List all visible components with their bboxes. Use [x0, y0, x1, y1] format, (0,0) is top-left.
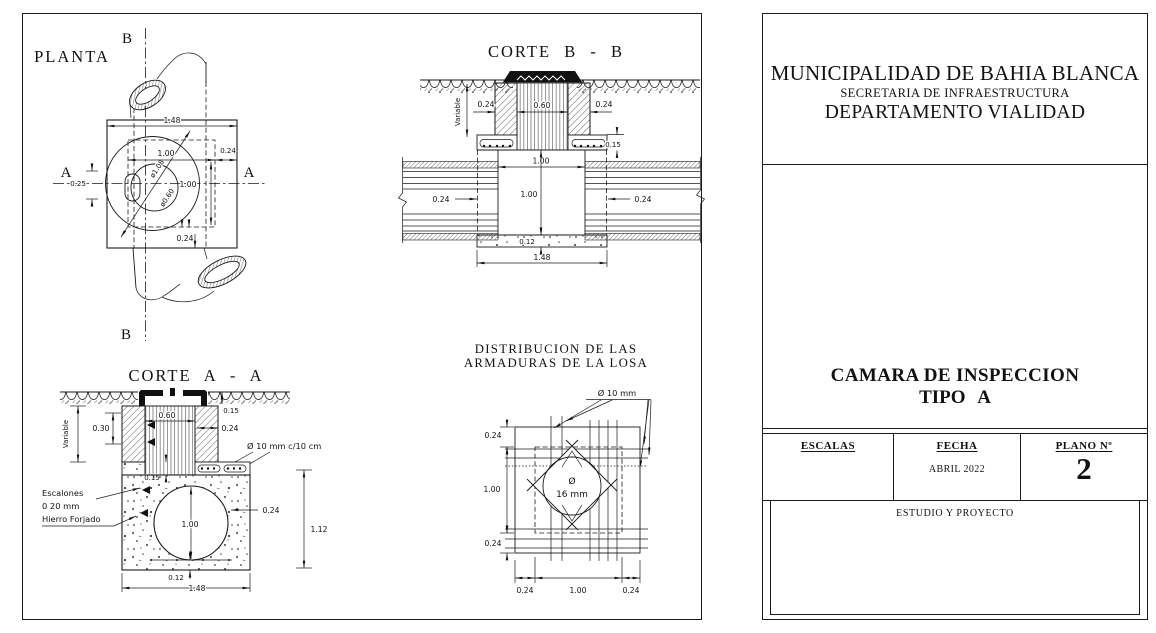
- planta-pipe-bot-bell: [193, 250, 250, 295]
- planta-pipe-top-bell: [124, 74, 171, 116]
- ground-hatch: [577, 80, 700, 93]
- bb-dim-024-pipe-left: 0.24: [433, 195, 450, 204]
- planta-dim-024-bottom: 0.24: [177, 234, 194, 243]
- dist-dim-bottom-mid: 1.00: [570, 586, 587, 595]
- planta-pipe-bot-right-bit: [204, 248, 207, 259]
- cover-flange-left: [503, 71, 515, 82]
- bb-variable-label: Variable: [454, 98, 462, 126]
- bb-slab-left: [477, 135, 517, 150]
- bb-dim-024-right: 0.24: [596, 100, 613, 109]
- title-block-info-row: ESCALAS FECHA ABRIL 2022 PLANO Nº 2: [763, 433, 1147, 501]
- planta-dim-148: 1.48: [164, 116, 181, 125]
- aa-cover-right: [183, 390, 207, 406]
- aa-dim-015-top: 0.15: [223, 407, 239, 415]
- corte-bb-view: CORTE B - B 0.24 0.60 0.24 Variable: [399, 42, 705, 267]
- fecha-value: ABRIL 2022: [894, 464, 1020, 475]
- chimney-shaft: [517, 83, 568, 150]
- aa-chimney-wall-right: [195, 406, 218, 462]
- section-label-a-left: A: [61, 165, 72, 181]
- title-block-header: MUNICIPALIDAD DE BAHIA BLANCA SECRETARIA…: [763, 14, 1147, 165]
- org-secretaria: SECRETARIA DE INFRAESTRUCTURA: [763, 85, 1147, 101]
- distribucion-title-2: ARMADURAS DE LA LOSA: [464, 356, 648, 370]
- dist-dim-left-mid: 1.00: [484, 485, 501, 494]
- rebar-top-label: Ø 10 mm: [598, 388, 637, 398]
- planta-dim-100-right: 1.00: [180, 180, 197, 189]
- planta-dim-100-top: 1.00: [158, 149, 175, 158]
- aa-dim-024-right: 0.24: [263, 506, 280, 515]
- dist-ext: [515, 557, 640, 583]
- aa-cover-center: [170, 388, 175, 396]
- aa-chimney-wall-left: [122, 406, 145, 462]
- dist-dim-left-bottom: 0.24: [485, 539, 502, 548]
- aa-steps-label-2: 0 20 mm: [42, 501, 79, 511]
- plano-number: 2: [1021, 453, 1147, 485]
- aa-dim-024: 0.24: [222, 424, 239, 433]
- drawing-sheet: PLANTA B B A A ø1.08 ø0.60: [0, 0, 1156, 633]
- aa-dim-030: 0.30: [93, 424, 110, 433]
- aa-dim-100: 1.00: [182, 520, 199, 529]
- aa-variable-label: Variable: [62, 420, 70, 448]
- aa-slab-left: [122, 462, 145, 475]
- aa-dim-112: 1.12: [311, 525, 328, 534]
- bb-dim-100-height: 1.00: [521, 190, 538, 199]
- planta-dia-inner: ø0.60: [159, 187, 177, 208]
- dist-dim-left-top: 0.24: [485, 431, 502, 440]
- planta-pipe-top-shoulder: [157, 53, 206, 79]
- bb-dim-024-pipe-right: 0.24: [635, 195, 652, 204]
- aa-dim-012: 0.12: [168, 574, 184, 582]
- aa-steps-label-1: Escalones: [42, 488, 83, 498]
- aa-rebar-label: Ø 10 mm c/10 cm: [247, 441, 321, 451]
- planta-pipe-bot-underside: [162, 291, 214, 302]
- rebar-leader: [554, 400, 601, 428]
- estudio-box: ESTUDIO Y PROYECTO: [770, 501, 1140, 615]
- bb-dim-012: 0.12: [519, 238, 535, 246]
- section-label-b-bottom: B: [121, 327, 131, 343]
- title-block: MUNICIPALIDAD DE BAHIA BLANCA SECRETARIA…: [762, 13, 1148, 620]
- center-dia-value: 16 mm: [556, 490, 588, 500]
- corte-aa-title: CORTE A - A: [128, 366, 263, 385]
- aa-dim-148: 1.48: [189, 584, 206, 593]
- planta-dia-outer: ø1.08: [149, 158, 167, 179]
- drawing-title-line2: TIPO A: [763, 387, 1147, 409]
- planta-dim-025: 0.25: [70, 180, 86, 188]
- planta-pipe-bot-shoulder: [136, 284, 180, 300]
- drawing-title-line1: CAMARA DE INSPECCION: [763, 365, 1147, 387]
- center-dia-symbol: Ø: [568, 476, 575, 487]
- org-name: MUNICIPALIDAD DE BAHIA BLANCA: [763, 61, 1147, 85]
- planta-pipe-bot-left-edge: [133, 248, 136, 288]
- estudio-label: ESTUDIO Y PROYECTO: [771, 508, 1139, 519]
- fecha-label: FECHA: [894, 440, 1020, 452]
- corte-aa-view: CORTE A - A 0.15 Variable 0.30 0.60: [42, 366, 328, 593]
- fecha-cell: FECHA ABRIL 2022: [894, 434, 1021, 500]
- bb-dim-024-left: 0.24: [478, 100, 495, 109]
- chimney-wall-right: [568, 83, 590, 135]
- corte-bb-title: CORTE B - B: [488, 42, 624, 61]
- estudio-row: ESTUDIO Y PROYECTO: [763, 501, 1147, 621]
- planta-dim-024-right: 0.24: [220, 147, 236, 155]
- drawing-title-panel: CAMARA DE INSPECCION TIPO A: [763, 165, 1147, 429]
- aa-slab-right: [195, 462, 250, 475]
- chimney-wall-left: [495, 83, 517, 135]
- org-departamento: DEPARTAMENTO VIALIDAD: [763, 101, 1147, 125]
- plano-cell: PLANO Nº 2: [1021, 434, 1147, 500]
- ground-hatch: [208, 392, 290, 404]
- distribucion-view: DISTRIBUCION DE LAS ARMADURAS DE LA LOSA: [464, 342, 651, 595]
- rebar-leader: [649, 400, 651, 455]
- cover-flange-right: [570, 71, 582, 82]
- aa-dim-060: 0.60: [159, 411, 176, 420]
- dist-dim-bottom-left: 0.24: [517, 586, 534, 595]
- bb-dim-148: 1.48: [534, 253, 551, 262]
- escalas-cell: ESCALAS: [763, 434, 894, 500]
- bb-slab-right: [568, 135, 607, 150]
- distribucion-title-1: DISTRIBUCION DE LAS: [475, 342, 638, 356]
- bb-bottom-slab: [477, 235, 607, 247]
- aa-cover-left: [139, 390, 163, 406]
- section-label-b-top: B: [122, 31, 132, 47]
- aa-steps-label-3: Hierro Forjado: [42, 514, 101, 524]
- rebar-leader: [566, 400, 612, 421]
- bb-dim-015: 0.15: [605, 141, 621, 149]
- dist-dim-bottom-right: 0.24: [623, 586, 640, 595]
- planta-view: PLANTA B B A A ø1.08 ø0.60: [34, 28, 267, 343]
- bb-dim-060: 0.60: [534, 101, 551, 110]
- section-label-a-right: A: [244, 165, 255, 181]
- ground-hatch: [60, 392, 138, 404]
- planta-title: PLANTA: [34, 47, 110, 66]
- escalas-label: ESCALAS: [763, 440, 893, 452]
